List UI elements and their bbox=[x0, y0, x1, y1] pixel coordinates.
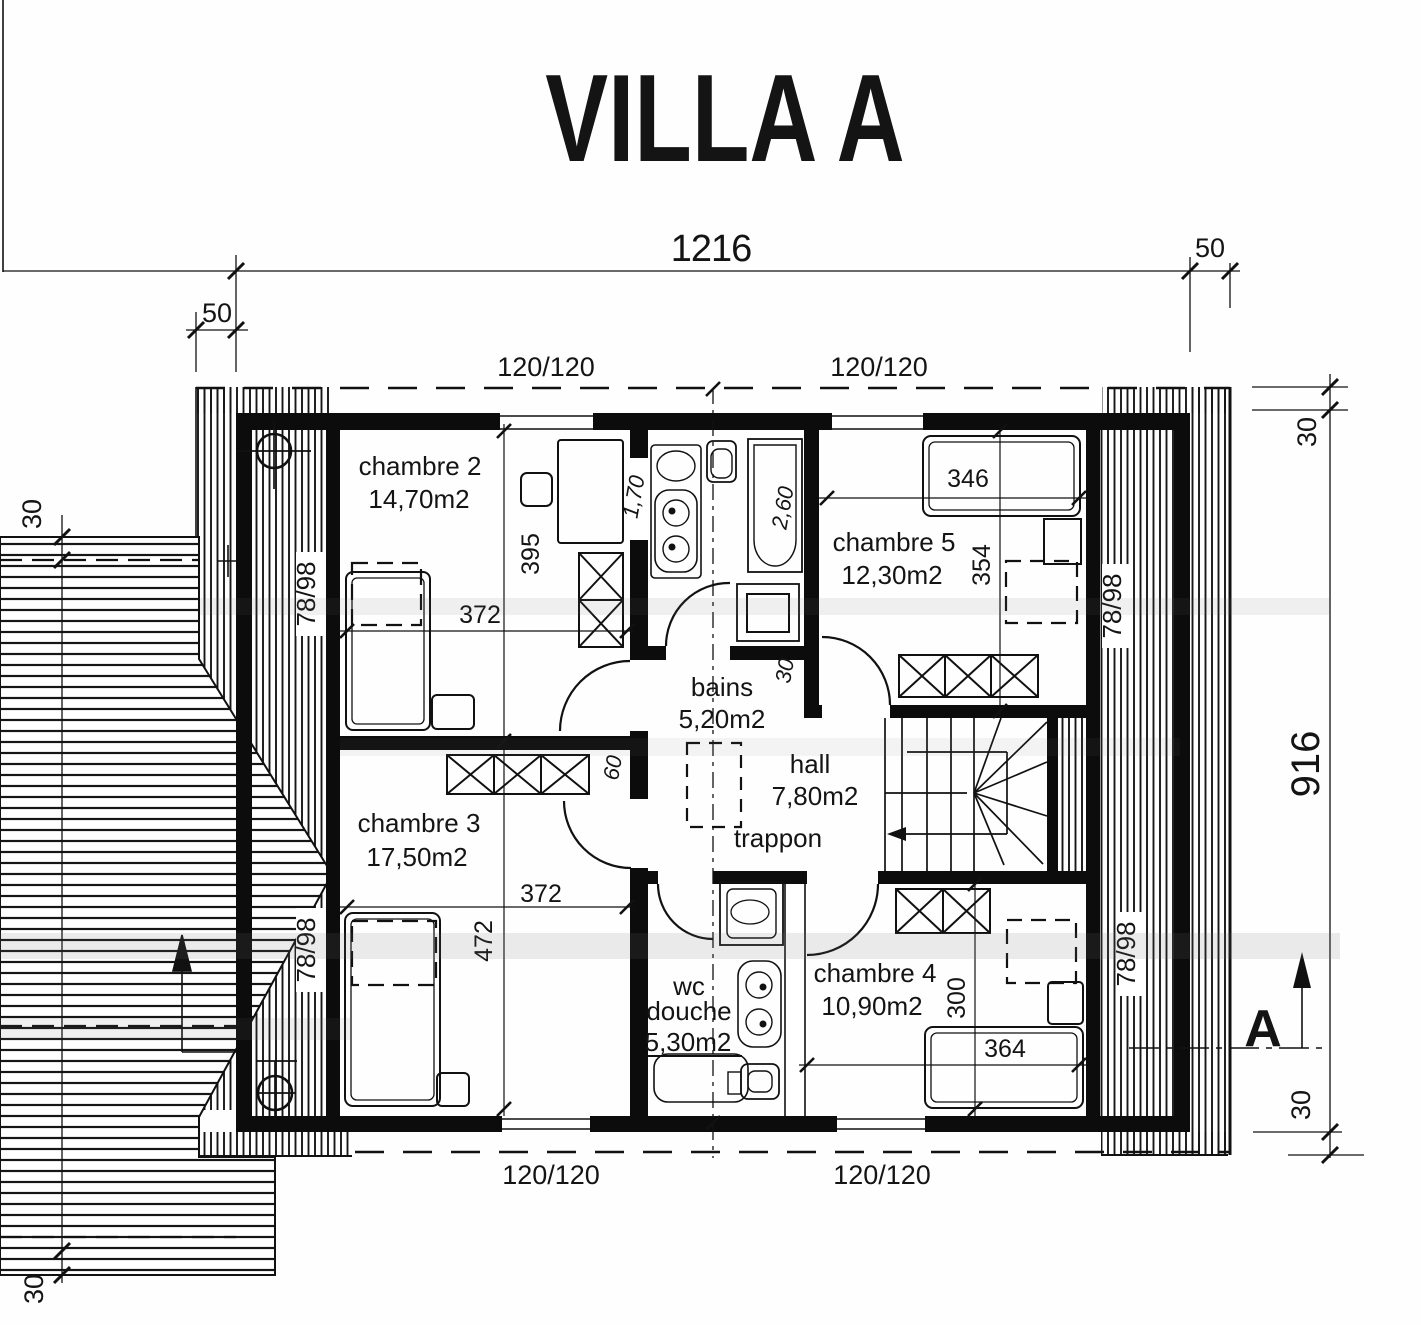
svg-text:7,80m2: 7,80m2 bbox=[772, 781, 859, 811]
svg-text:372: 372 bbox=[520, 880, 562, 908]
svg-text:354: 354 bbox=[968, 544, 996, 586]
svg-text:chambre 5: chambre 5 bbox=[833, 527, 956, 557]
svg-text:120/120: 120/120 bbox=[497, 352, 595, 382]
svg-text:A: A bbox=[1244, 1000, 1282, 1058]
svg-text:30: 30 bbox=[1286, 1090, 1316, 1120]
svg-text:douche: douche bbox=[646, 996, 731, 1026]
svg-text:78/98: 78/98 bbox=[291, 561, 321, 626]
svg-text:60: 60 bbox=[598, 753, 627, 782]
svg-text:120/120: 120/120 bbox=[833, 1160, 931, 1190]
svg-text:5,30m2: 5,30m2 bbox=[645, 1027, 732, 1057]
svg-text:chambre 4: chambre 4 bbox=[814, 958, 937, 988]
svg-text:trappon: trappon bbox=[734, 823, 822, 853]
svg-text:1216: 1216 bbox=[671, 228, 752, 270]
svg-text:395: 395 bbox=[517, 533, 545, 575]
svg-text:50: 50 bbox=[202, 298, 232, 328]
svg-text:VILLA A: VILLA A bbox=[545, 50, 904, 188]
svg-text:120/120: 120/120 bbox=[502, 1160, 600, 1190]
svg-text:300: 300 bbox=[943, 977, 971, 1019]
svg-text:50: 50 bbox=[1195, 233, 1225, 263]
svg-text:17,50m2: 17,50m2 bbox=[366, 842, 467, 872]
svg-text:12,30m2: 12,30m2 bbox=[841, 560, 942, 590]
svg-text:346: 346 bbox=[947, 465, 989, 493]
svg-text:14,70m2: 14,70m2 bbox=[368, 484, 469, 514]
svg-text:30: 30 bbox=[1292, 417, 1322, 447]
svg-text:30: 30 bbox=[19, 1274, 49, 1304]
svg-text:10,90m2: 10,90m2 bbox=[821, 991, 922, 1021]
svg-text:30: 30 bbox=[770, 656, 799, 685]
svg-text:bains: bains bbox=[691, 672, 753, 702]
svg-text:364: 364 bbox=[984, 1035, 1026, 1063]
svg-text:chambre 2: chambre 2 bbox=[359, 451, 482, 481]
svg-text:120/120: 120/120 bbox=[830, 352, 928, 382]
svg-text:916: 916 bbox=[1284, 731, 1328, 798]
svg-text:5,20m2: 5,20m2 bbox=[679, 704, 766, 734]
svg-text:30: 30 bbox=[17, 499, 47, 529]
svg-text:chambre 3: chambre 3 bbox=[358, 808, 481, 838]
